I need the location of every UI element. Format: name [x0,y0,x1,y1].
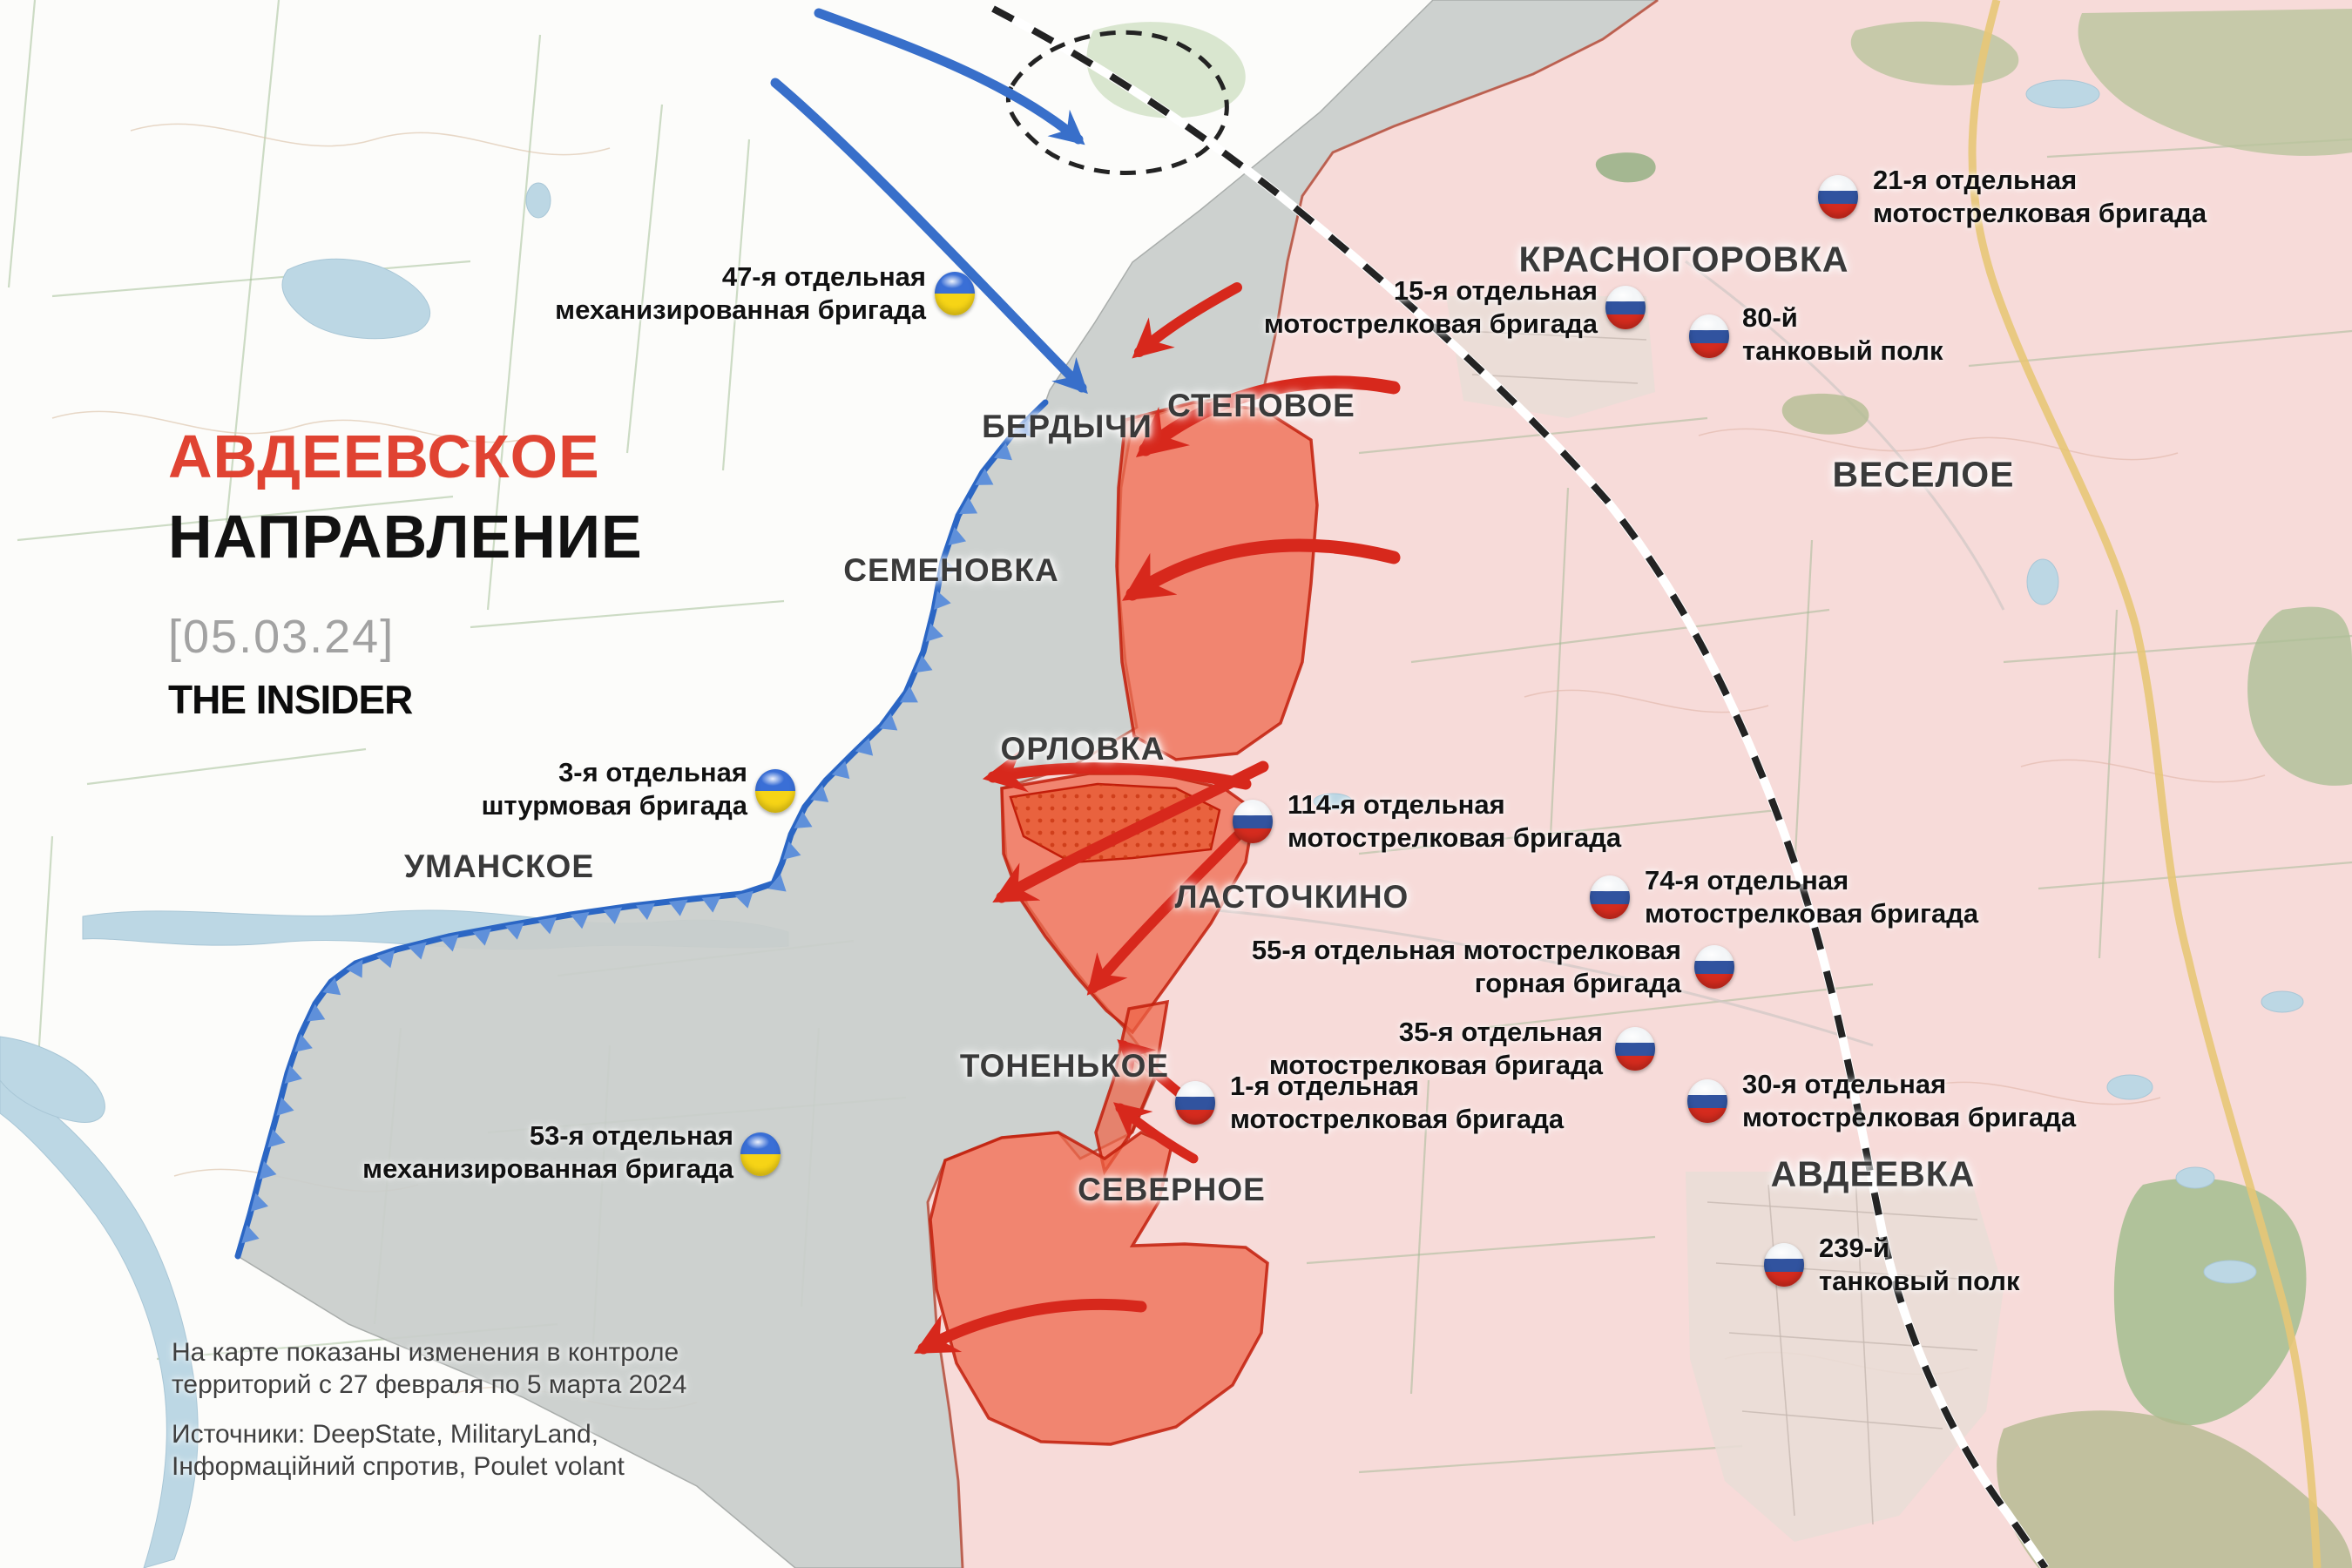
sources-line-1: Источники: DeepState, MilitaryLand, [172,1418,686,1450]
ua-arrow-berdychi [775,83,1082,388]
avdeevka-direction-map: БЕРДЫЧИСТЕПОВОЕСЕМЕНОВКАОРЛОВКАУМАНСКОЕЛ… [0,0,2352,1568]
sources-line-2: Інформаційний спротив, Poulet volant [172,1450,686,1483]
map-title-black: НАПРАВЛЕНИЕ [168,497,643,577]
krasnogorovka-urban-area [1446,296,1655,418]
note-line-2: территорий с 27 февраля по 5 марта 2024 [172,1369,686,1401]
note-line-1: На карте показаны изменения в контроле [172,1336,686,1369]
map-date: [05.03.24] [168,610,643,664]
map-notes: На карте показаны изменения в контроле т… [172,1336,686,1483]
title-block: АВДЕЕВСКОЕ НАПРАВЛЕНИЕ [05.03.24] THE IN… [168,416,643,723]
map-canvas [0,0,2352,1568]
map-title-red: АВДЕЕВСКОЕ [168,416,643,497]
brand-logo: THE INSIDER [168,676,643,723]
ukrainian-arrows [775,13,1082,388]
